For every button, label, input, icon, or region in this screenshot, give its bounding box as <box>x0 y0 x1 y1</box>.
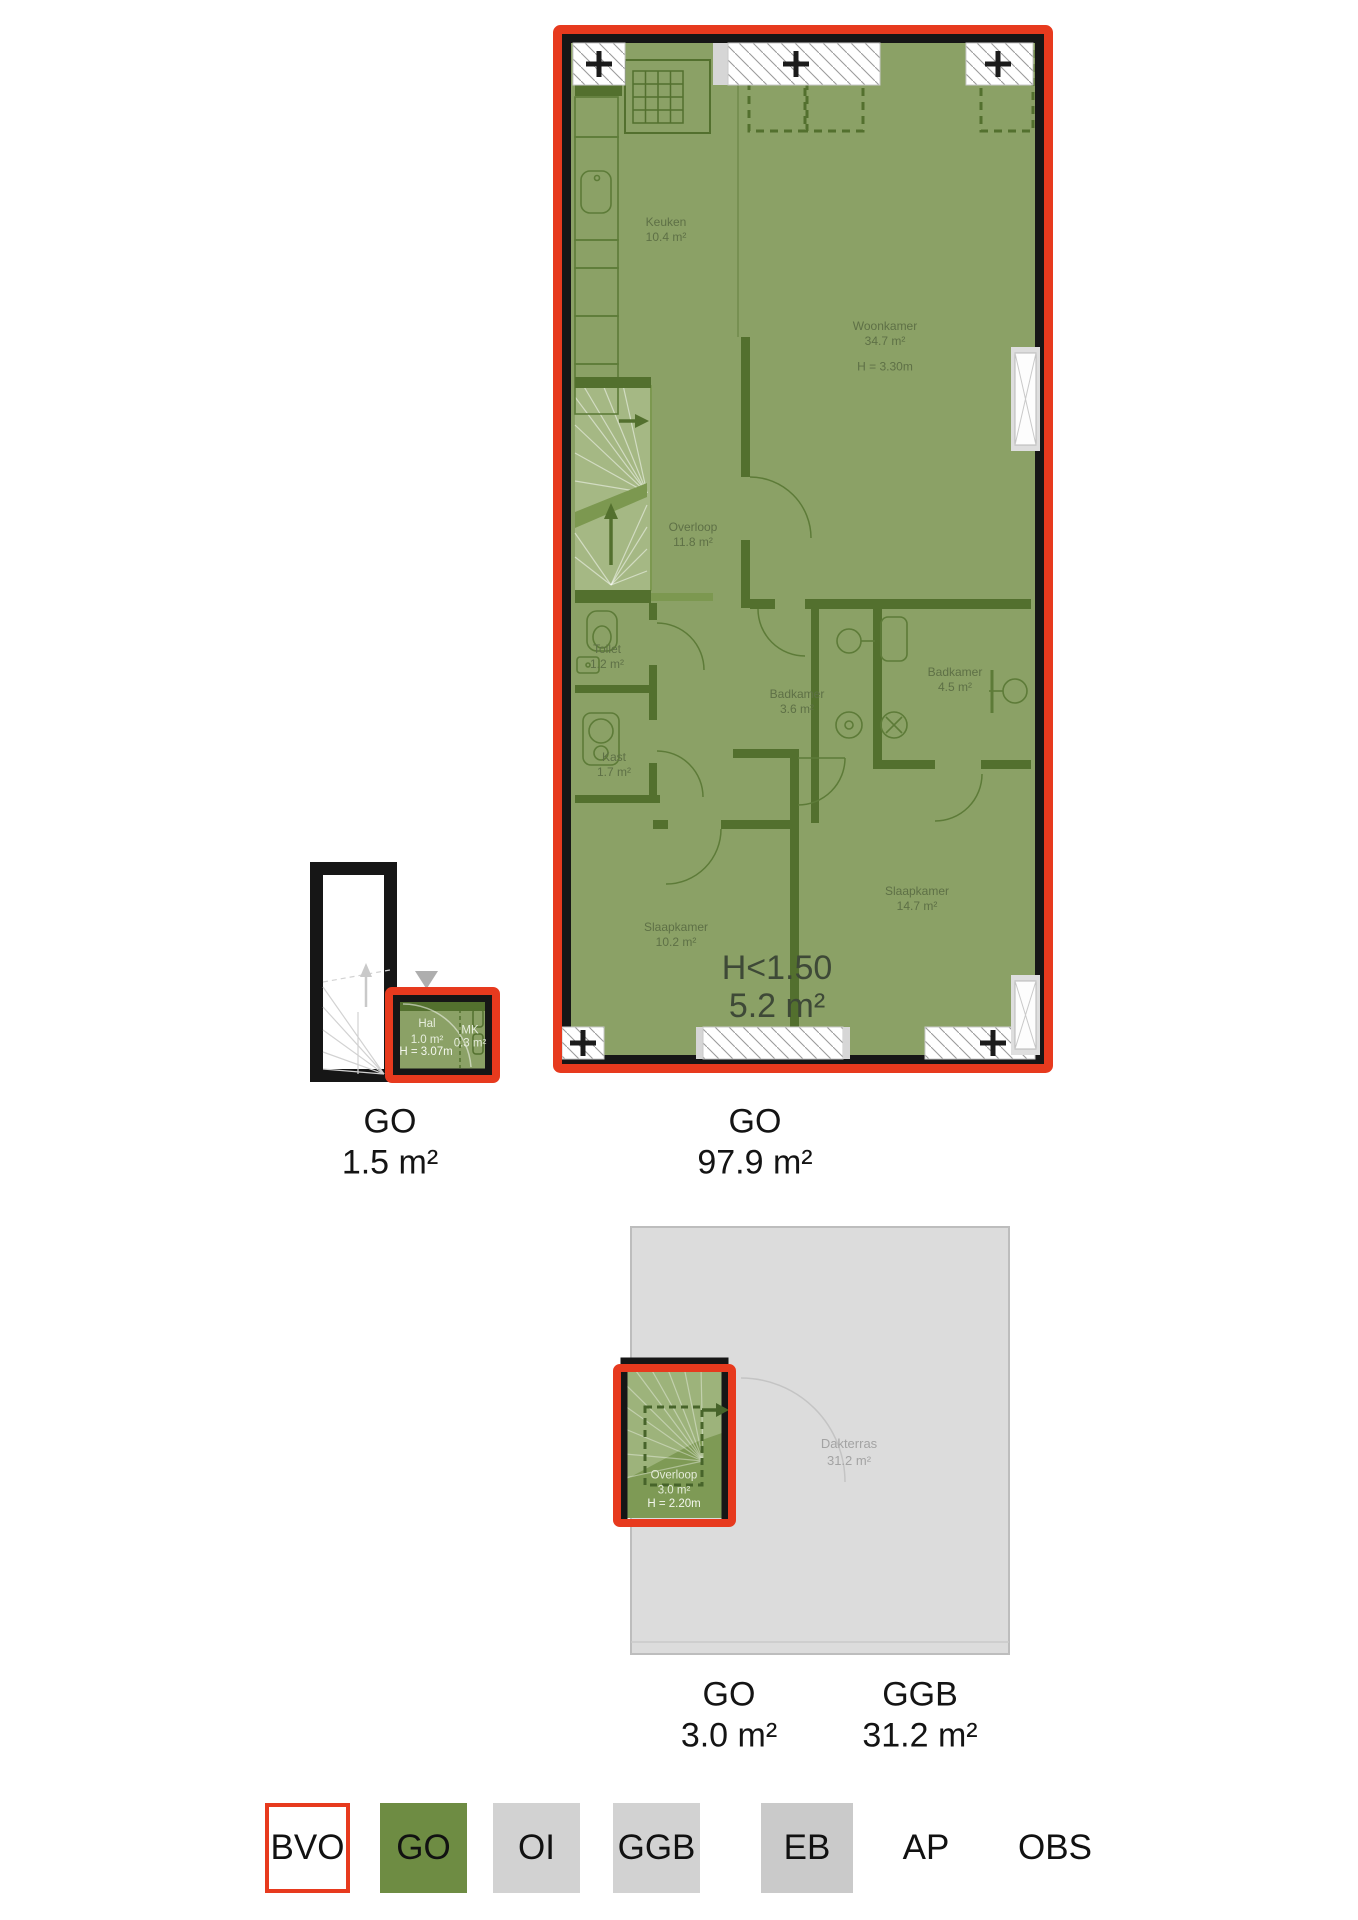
room-height-woonkamer: H = 3.30m <box>857 360 913 375</box>
legend-item-obs: OBS <box>995 1803 1115 1893</box>
legend-label-bvo: BVO <box>271 1828 345 1868</box>
room-label-slaapkamer-rechts: Slaapkamer14.7 m² <box>885 884 949 914</box>
legend-swatch-go: GO <box>380 1803 467 1893</box>
room-height-overloop-dak: H = 2.20m <box>647 1498 700 1510</box>
legend-label-go: GO <box>396 1828 450 1868</box>
room-label-badkamer-groot: Badkamer4.5 m² <box>928 665 983 695</box>
legend-swatch-eb: EB <box>761 1803 853 1893</box>
room-label-kast: Kast1.7 m² <box>597 750 631 780</box>
legend-swatch-ggb: GGB <box>613 1803 700 1893</box>
room-height-hal: H = 3.07m <box>399 1046 452 1058</box>
legend-item-ap: AP <box>876 1803 976 1893</box>
room-label-overloop: Overloop11.8 m² <box>669 520 718 550</box>
legend-label-eb: EB <box>784 1828 831 1868</box>
legend-swatch-bvo: BVO <box>265 1803 350 1893</box>
room-label-toilet: Toilet1.2 m² <box>590 642 624 672</box>
floorplan-main-drawing <box>553 25 1053 1073</box>
room-label-slaapkamer-links: Slaapkamer10.2 m² <box>644 920 708 950</box>
room-label-woonkamer: Woonkamer34.7 m² <box>853 319 917 349</box>
legend-label-ggb: GGB <box>618 1828 696 1868</box>
caption-go-main: GO97.9 m² <box>697 1102 812 1185</box>
floorplan-hal: Hal1.0 m² H = 3.07m MK0.3 m² <box>310 862 505 1084</box>
stairs-icon <box>575 385 651 591</box>
caption-go-hal: GO1.5 m² <box>342 1102 438 1185</box>
room-label-mk: MK0.3 m² <box>454 1024 487 1049</box>
caption-ggb-dak: GGB31.2 m² <box>862 1675 977 1758</box>
room-label-keuken: Keuken10.4 m² <box>646 215 687 245</box>
room-label-hal: Hal1.0 m² <box>411 1016 444 1048</box>
legend-label-obs: OBS <box>1018 1828 1092 1868</box>
room-label-dakterras: Dakterras31.2 m² <box>821 1436 877 1470</box>
floorplan-main: Keuken10.4 m² Woonkamer34.7 m² H = 3.30m… <box>553 25 1053 1073</box>
room-label-overloop-dak: Overloop3.0 m² <box>651 1468 698 1497</box>
entrance-arrow-icon <box>415 971 438 989</box>
legend-label-ap: AP <box>903 1828 950 1868</box>
room-label-badkamer-klein: Badkamer3.6 m² <box>770 687 825 717</box>
legend-swatch-oi: OI <box>493 1803 580 1893</box>
legend-label-oi: OI <box>518 1828 555 1868</box>
floorplan-dak: Overloop3.0 m² H = 2.20m Dakterras31.2 m… <box>608 1226 1012 1656</box>
floorplan-measurement-sheet: Keuken10.4 m² Woonkamer34.7 m² H = 3.30m… <box>0 0 1358 1920</box>
floorplan-dak-drawing <box>608 1226 1012 1656</box>
low-height-label: H<1.505.2 m² <box>722 949 833 1025</box>
caption-go-dak: GO3.0 m² <box>681 1675 777 1758</box>
